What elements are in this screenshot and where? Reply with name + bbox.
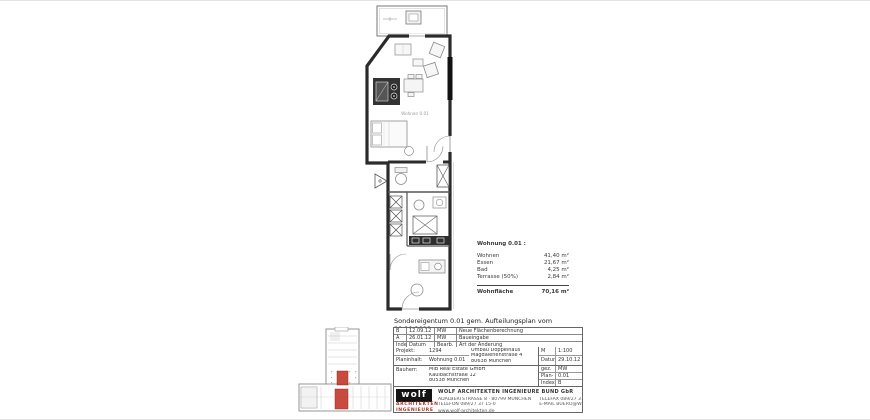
rev-index: A: [394, 335, 407, 342]
projekt-label: Projekt:: [394, 347, 427, 356]
field-row: Plan-Nr. 0.01: [539, 373, 582, 380]
area-table-divider: [477, 285, 569, 286]
wolf-logo: wolf: [396, 389, 432, 402]
title-block-project-section: Projekt: Planinhalt: 1294 Wohnung 0.01 U…: [394, 347, 582, 365]
bauherr-value: MIB Real Estate GmbH Kaulbachstraße 12 8…: [427, 366, 538, 386]
project-address: Umbau Doppelhaus Magdalenenstraße 4 8063…: [469, 347, 538, 365]
project-address-line: 80638 München: [471, 359, 536, 364]
terrace-door: [409, 34, 425, 39]
field-row: Datum 29.10.12: [539, 356, 582, 365]
title-block: Projekt: Planinhalt: 1294 Wohnung 0.01 U…: [393, 347, 583, 413]
field-row: gez. MW: [539, 366, 582, 373]
fields-bottom: gez. MW Plan-Nr. 0.01 Index B: [538, 366, 582, 386]
floor-plan-drawing: Wohnen 0.01: [357, 2, 457, 314]
firm-contact-right: TELEFAX 089/27 37 15-19 E-MAIL BUERO@WOL…: [539, 397, 582, 407]
bed: [371, 121, 407, 147]
project-values: 1294 Wohnung 0.01: [427, 347, 469, 365]
direction-marker: [375, 174, 387, 188]
area-total-value: 70,16 m²: [542, 289, 569, 296]
field-value: 29.10.12: [556, 356, 582, 365]
area-value: 2,84 m²: [547, 274, 569, 281]
room-label: Wohnen 0.01: [401, 111, 429, 116]
field-value: 0.01: [556, 373, 582, 379]
title-block-logo-section: wolf ARCHITEKTEN INGENIEURE WOLF ARCHITE…: [394, 386, 582, 413]
field-label: Datum: [539, 356, 556, 365]
area-label: Terrasse (50%): [477, 274, 518, 281]
area-value: 21,67 m²: [544, 260, 569, 267]
site-key-plan: [297, 327, 393, 417]
area-row: Essen 21,67 m²: [477, 260, 569, 267]
rev-datum: 26.01.12: [407, 335, 435, 342]
highlighted-unit: [335, 371, 348, 409]
area-label: Wohnen: [477, 253, 499, 260]
firm-contact-left: ADALBERTSTRASSE 8 · 80799 MÜNCHEN TELEFO…: [438, 397, 531, 407]
logo-subline: INGENIEURE: [396, 409, 434, 414]
shafts: [390, 196, 402, 236]
plan-sheet: Wohnen 0.01: [0, 0, 870, 420]
field-value: 1:100: [556, 347, 582, 355]
field-label: Plan-Nr.: [539, 373, 556, 379]
area-table: Wohnung 0.01 : Wohnen 41,40 m² Essen 21,…: [477, 241, 569, 296]
area-label: Bad: [477, 267, 488, 274]
field-row: M 1:100: [539, 347, 582, 356]
kitchen-block: [373, 78, 400, 105]
contact-line: TELEFON 089/27 37 15-0: [438, 402, 531, 407]
rev-aenderung: Baueingabe: [457, 335, 582, 342]
area-row: Wohnen 41,40 m²: [477, 253, 569, 260]
projekt-nr: 1294: [427, 347, 469, 356]
chair: [405, 147, 414, 156]
area-total-row: Wohnfläche 70,16 m²: [477, 289, 569, 296]
terrace: [377, 6, 447, 36]
rev-datum: 12.09.12: [407, 328, 435, 335]
area-value: 4,25 m²: [547, 267, 569, 274]
area-label: Essen: [477, 260, 493, 267]
planinhalt-value: Wohnung 0.01: [427, 356, 469, 365]
area-total-label: Wohnfläche: [477, 289, 513, 296]
firm-website: www.wolf-architekten.de: [438, 409, 580, 413]
firm-info: WOLF ARCHITEKTEN INGENIEURE BUND GbR ADA…: [436, 387, 582, 413]
bauherr-line: 80538 München: [429, 378, 536, 384]
planinhalt-label: Planinhalt:: [394, 356, 427, 365]
fields-top: M 1:100 Datum 29.10.12: [538, 347, 582, 365]
area-value: 41,40 m²: [544, 253, 569, 260]
rev-aenderung: Neue Flächenberechnung: [457, 328, 582, 335]
contact-line: E-MAIL BUERO@WOLF-ARCHITEKTEN.DE: [539, 402, 582, 407]
rev-index: B: [394, 328, 407, 335]
rev-bearb: MW: [435, 335, 457, 342]
firm-logo: wolf ARCHITEKTEN INGENIEURE: [394, 387, 436, 413]
project-labels: Projekt: Planinhalt:: [394, 347, 427, 365]
bauherr-label: Bauherr:: [394, 366, 427, 375]
field-label: gez.: [539, 366, 556, 372]
rev-bearb: MW: [435, 328, 457, 335]
area-table-title: Wohnung 0.01 :: [477, 241, 569, 247]
field-value: MW: [556, 366, 582, 372]
firm-name: WOLF ARCHITEKTEN INGENIEURE BUND GbR: [438, 389, 580, 395]
field-label: M: [539, 347, 556, 355]
area-row: Terrasse (50%) 2,84 m²: [477, 274, 569, 281]
title-block-client-section: Bauherr: MIB Real Estate GmbH Kaulbachst…: [394, 365, 582, 386]
area-row: Bad 4,25 m²: [477, 267, 569, 274]
